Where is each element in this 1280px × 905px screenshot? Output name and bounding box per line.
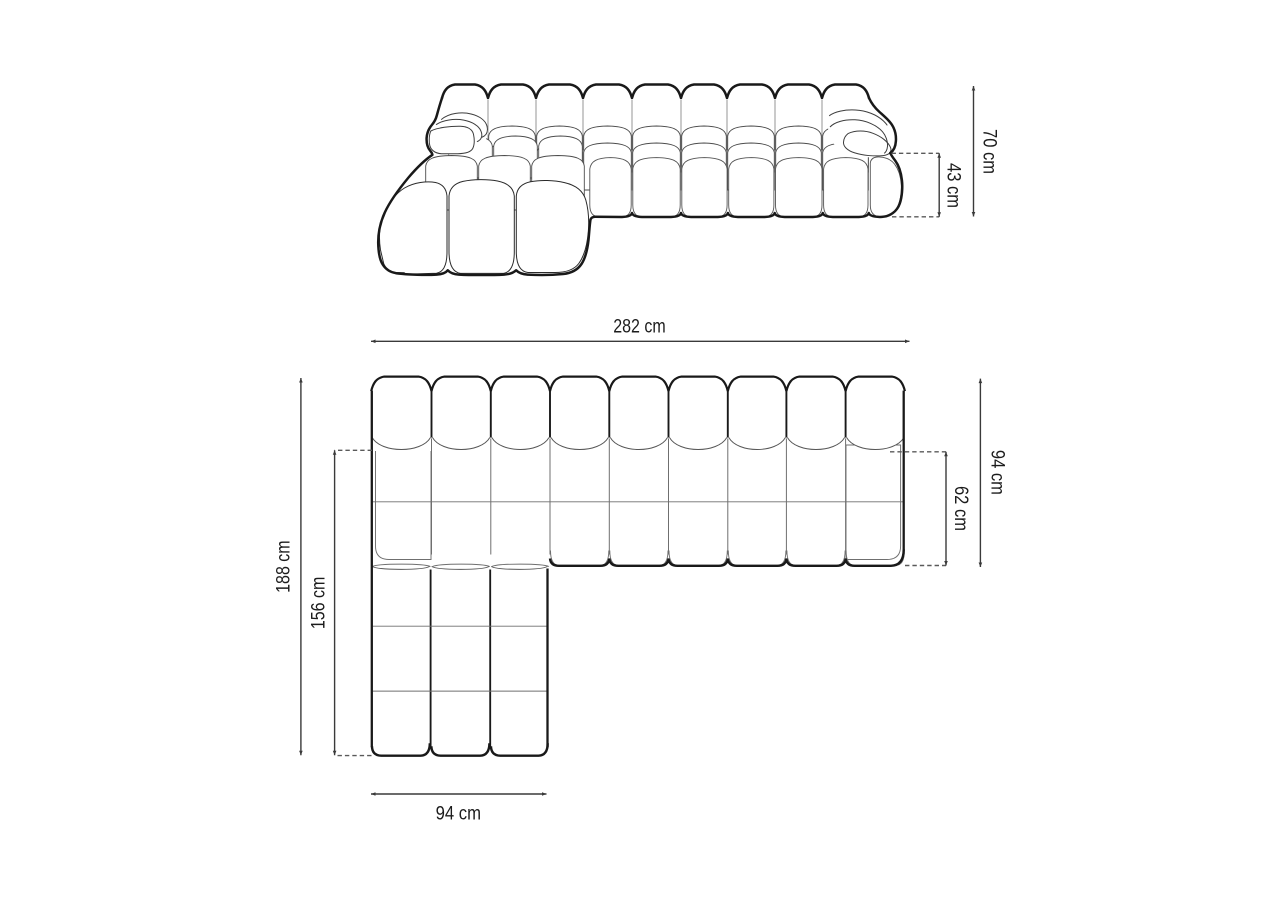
svg-text:94 cm: 94 cm	[436, 803, 481, 825]
svg-text:188 cm: 188 cm	[273, 540, 295, 593]
svg-text:282 cm: 282 cm	[613, 315, 666, 337]
svg-text:62 cm: 62 cm	[950, 486, 972, 531]
svg-text:94 cm: 94 cm	[986, 450, 1008, 495]
svg-text:156 cm: 156 cm	[307, 577, 329, 630]
svg-text:43 cm: 43 cm	[943, 163, 965, 208]
svg-text:70 cm: 70 cm	[979, 129, 1001, 174]
